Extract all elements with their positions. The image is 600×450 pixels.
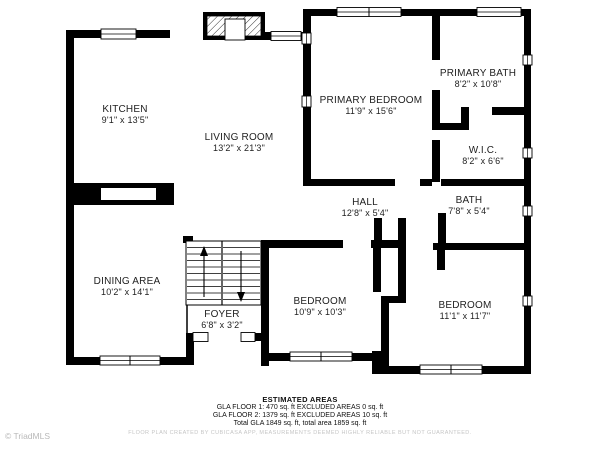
disclaimer-text: FLOOR PLAN CREATED BY CUBICASA APP, MEAS… [0,430,600,436]
window-kitchen-top [101,29,136,39]
room-label-living-room: LIVING ROOM13'2" x 21'3" [205,132,274,154]
room-label-bath: BATH7'8" x 5'4" [448,195,490,217]
estimated-areas-title: ESTIMATED AREAS [0,395,600,404]
total-gla-line: Total GLA 1849 sq. ft, total area 1859 s… [0,420,600,428]
room-label-kitchen: KITCHEN9'1" x 13'5" [102,104,149,126]
window-bedroom-mid-bottom [290,352,352,361]
estimated-areas-block: ESTIMATED AREAS GLA FLOOR 1: 470 sq. ft … [0,395,600,428]
window-living-top [271,32,301,41]
mls-watermark: © TriadMLS [5,431,50,441]
room-label-foyer: FOYER6'8" x 3'2" [201,309,243,331]
room-label-bedroom-2: BEDROOM11'1" x 11'7" [438,300,491,322]
front-door-sidelights [193,333,255,342]
gla-floor-2-line: GLA FLOOR 2: 1379 sq. ft EXCLUDED AREAS … [0,412,600,420]
window-dining-bottom [100,356,160,365]
room-label-wic: W.I.C.8'2" x 6'6" [462,145,504,167]
room-label-bedroom-1: BEDROOM10'9" x 10'3" [293,296,346,318]
gla-floor-1-line: GLA FLOOR 1: 470 sq. ft EXCLUDED AREAS 0… [0,404,600,412]
room-label-hall: HALL12'8" x 5'4" [342,197,389,219]
room-label-dining-area: DINING AREA10'2" x 14'1" [94,276,161,298]
window-bedroom-right-bottom [420,365,482,374]
floorplan-page: KITCHEN9'1" x 13'5" LIVING ROOM13'2" x 2… [0,0,600,450]
chimney [203,12,265,40]
window-primary-bedroom-top [337,8,401,17]
fireplace-inset [101,188,156,200]
room-label-primary-bath: PRIMARY BATH8'2" x 10'8" [440,68,516,90]
room-label-primary-bedroom: PRIMARY BEDROOM11'9" x 15'6" [320,95,423,117]
window-primary-bath-top [477,8,521,17]
